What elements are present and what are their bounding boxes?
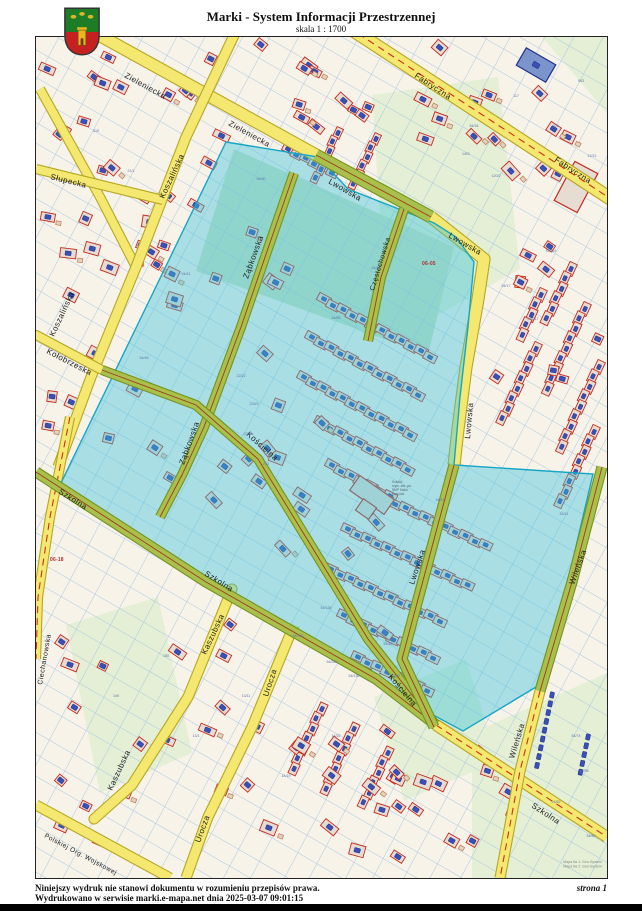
address-chip [45, 423, 52, 428]
map-text: 54/90 [257, 177, 266, 181]
map-text: 54/84 [372, 266, 381, 270]
address-chip [546, 709, 551, 716]
footer-left: Niniejszy wydruk nie stanowi dokumentu w… [35, 883, 320, 903]
map-text: 120/2 [492, 174, 501, 178]
map-text: 54/74 [572, 734, 581, 738]
map-text: 54/48 [140, 356, 149, 360]
address-chip [534, 762, 539, 769]
map-text: 14/19 [282, 774, 291, 778]
address-chip [45, 214, 52, 219]
map-text: 06-05 [422, 261, 436, 267]
map-text: 128 [553, 124, 559, 128]
map-text: 54/119 [546, 249, 557, 253]
map-text: 117 [513, 94, 519, 98]
address-chip [549, 692, 554, 699]
marki-coat-of-arms [63, 5, 101, 58]
map-text: 54/17 [502, 284, 511, 288]
map-text: 54/46 [384, 642, 393, 646]
map-text: 13/1 [193, 734, 200, 738]
map-text: Mapa tła 2: Geo-System [563, 865, 602, 869]
map-text: 225/4 [244, 432, 253, 436]
map-text: 54/288 [327, 660, 338, 664]
map-text: 54/50 [587, 834, 596, 838]
map-text: 233 [263, 462, 269, 466]
map-text: 315 [93, 129, 99, 133]
crest-leaf [88, 15, 94, 19]
address-chip [585, 734, 590, 741]
map-text: 54/34 [470, 124, 479, 128]
map-text: 06-18 [50, 557, 64, 563]
map-text: 13/11 [242, 694, 251, 698]
map-text: 12/21 [588, 154, 597, 158]
map-text: 225/3 [250, 402, 259, 406]
crest-tower-top [77, 27, 87, 30]
address-chip [65, 251, 71, 256]
address-chip [538, 744, 543, 751]
map-svg[interactable]: ZielenieckaZielenieckaFabrycznaFabryczna… [36, 37, 607, 878]
address-chip [550, 368, 557, 373]
building [77, 258, 82, 263]
map-text: 149 [113, 694, 119, 698]
address-chip [542, 727, 547, 734]
address-chip [49, 394, 56, 399]
footer: Niniejszy wydruk nie stanowi dokumentu w… [35, 883, 607, 903]
footer-disclaimer: Niniejszy wydruk nie stanowi dokumentu w… [35, 883, 320, 893]
map-text: 1401 [462, 152, 470, 156]
map-text: 21/1 [128, 169, 135, 173]
footer-printinfo: Wydrukowano w serwisie marki.e-mapa.net … [35, 893, 320, 903]
address-chip [580, 760, 585, 767]
map-text: 54/11 [560, 512, 569, 516]
address-chip [547, 700, 552, 707]
map-text: 54/100 [293, 634, 304, 638]
map-text: 54/41 [182, 272, 191, 276]
bottom-bar [0, 904, 642, 911]
map-text: 54/41 [436, 498, 445, 502]
crest-leaf [79, 12, 85, 16]
crest-gate [81, 38, 84, 45]
map-root: ZielenieckaZielenieckaFabrycznaFabryczna… [36, 37, 607, 878]
map-text: 14/22 [332, 734, 341, 738]
map-text: 54/62 [552, 800, 561, 804]
map-text: 963 [578, 79, 584, 83]
map-text: 54/83 [332, 316, 341, 320]
building [54, 430, 60, 435]
map-text: 1302 [392, 674, 400, 678]
map-canvas[interactable]: ZielenieckaZielenieckaFabrycznaFabryczna… [35, 36, 608, 879]
address-chip [582, 751, 587, 758]
address-chip [540, 736, 545, 743]
building [56, 221, 62, 226]
print-page: Marki - System Informacji Przestrzennej … [0, 0, 642, 911]
map-text: 223/2 [237, 374, 246, 378]
address-chip [536, 753, 541, 760]
map-text: Kościoła [392, 492, 404, 496]
map-text: 54/130 [349, 674, 360, 678]
map-text: 150 [163, 654, 169, 658]
map-text: 54/138 [321, 606, 332, 610]
crest-leaf [71, 15, 77, 19]
map-text: 54/217 [528, 317, 539, 321]
page-number: strona 1 [577, 883, 607, 893]
address-chip [544, 718, 549, 725]
address-chip [583, 742, 588, 749]
map-text: Mapa tła 1: Geo-System [563, 860, 602, 864]
map-text: 54/58 [580, 769, 589, 773]
